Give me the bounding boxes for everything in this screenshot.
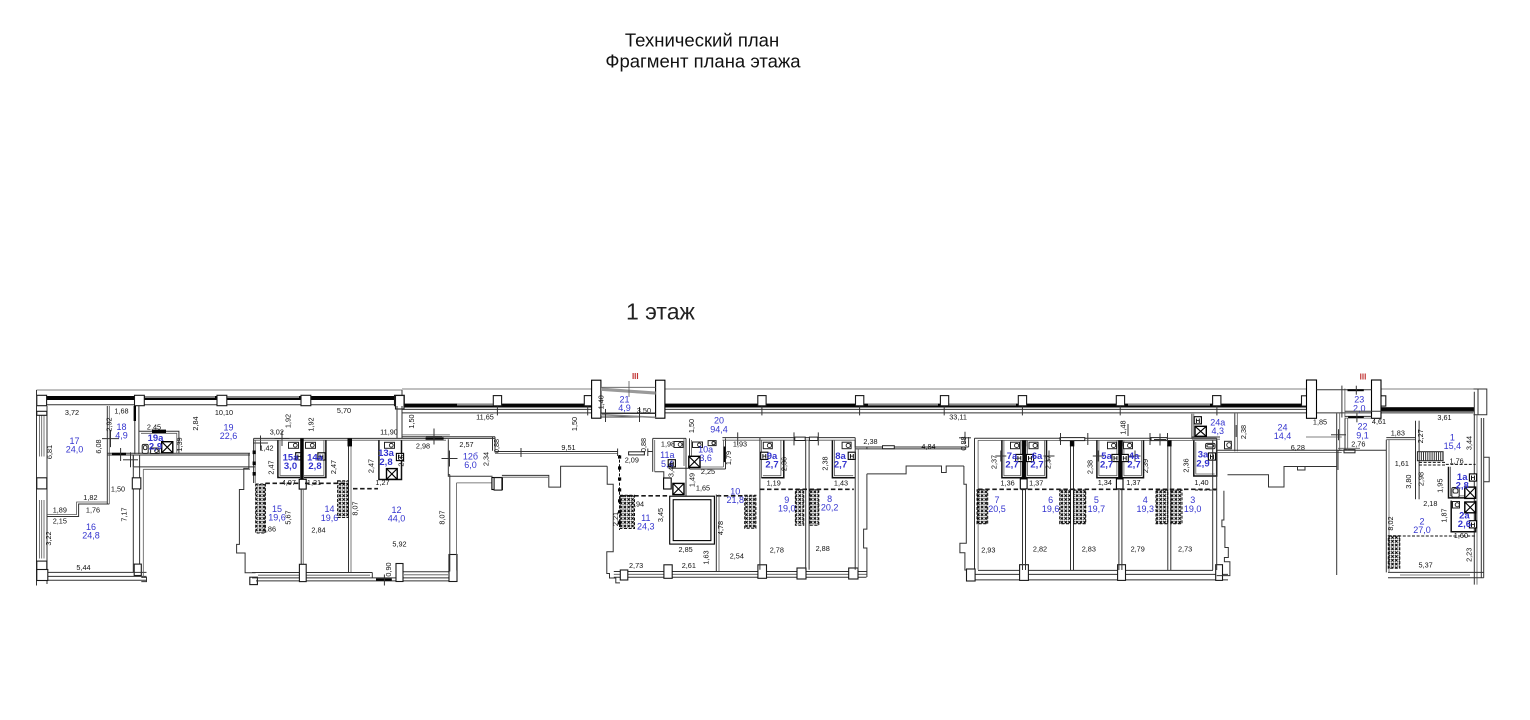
svg-text:2,38: 2,38 (1239, 425, 1248, 439)
svg-text:24,8: 24,8 (82, 531, 100, 541)
svg-text:2,61: 2,61 (682, 561, 696, 570)
svg-text:1,65: 1,65 (696, 483, 710, 492)
svg-text:2,93: 2,93 (981, 546, 995, 555)
svg-text:8,02: 8,02 (1386, 516, 1395, 530)
svg-text:1,43: 1,43 (834, 478, 848, 487)
svg-text:1,36: 1,36 (1000, 478, 1014, 487)
svg-text:4,9: 4,9 (115, 431, 128, 441)
svg-text:1,76: 1,76 (86, 506, 100, 515)
svg-text:1,83: 1,83 (1391, 429, 1405, 438)
svg-text:19,0: 19,0 (778, 503, 796, 513)
svg-text:3,80: 3,80 (1404, 474, 1413, 488)
svg-text:0,88: 0,88 (959, 436, 968, 450)
svg-text:2,15: 2,15 (53, 517, 67, 526)
svg-text:2,79: 2,79 (1131, 545, 1145, 554)
svg-text:2,8: 2,8 (308, 461, 321, 472)
svg-text:1 этаж: 1 этаж (626, 299, 695, 325)
svg-text:1,39: 1,39 (175, 437, 184, 451)
svg-text:1,85: 1,85 (1313, 417, 1327, 426)
svg-text:2,83: 2,83 (1082, 545, 1096, 554)
svg-text:2,8: 2,8 (1456, 480, 1469, 491)
svg-text:19,6: 19,6 (1042, 504, 1060, 514)
svg-text:1,92: 1,92 (284, 414, 293, 428)
svg-text:2,18: 2,18 (1423, 499, 1437, 508)
svg-text:3,02: 3,02 (270, 428, 284, 437)
svg-text:2,7: 2,7 (1030, 460, 1043, 471)
svg-text:H: H (849, 453, 854, 460)
svg-text:H: H (1471, 475, 1476, 482)
svg-text:44,0: 44,0 (388, 514, 406, 524)
svg-text:2,36: 2,36 (780, 457, 789, 471)
svg-text:2,7: 2,7 (1127, 460, 1140, 471)
svg-text:1,87: 1,87 (1439, 508, 1448, 522)
svg-text:H: H (1195, 418, 1200, 425)
svg-text:1,93: 1,93 (733, 440, 747, 449)
svg-text:III: III (632, 372, 639, 381)
svg-text:4,9: 4,9 (618, 403, 631, 413)
svg-text:H: H (1210, 454, 1215, 461)
svg-text:4,78: 4,78 (716, 521, 725, 535)
svg-text:1,50: 1,50 (570, 417, 579, 431)
svg-text:8,07: 8,07 (438, 510, 447, 524)
svg-text:4,3: 4,3 (1212, 426, 1225, 436)
svg-text:2,38: 2,38 (821, 456, 830, 470)
svg-text:2,76: 2,76 (1351, 439, 1365, 448)
svg-text:2,82: 2,82 (1033, 545, 1047, 554)
svg-text:1,37: 1,37 (1126, 478, 1140, 487)
svg-text:3,50: 3,50 (637, 406, 651, 415)
svg-text:1,68: 1,68 (114, 407, 128, 416)
svg-text:2,73: 2,73 (629, 561, 643, 570)
svg-text:3,0: 3,0 (284, 461, 297, 472)
svg-text:2,9: 2,9 (1196, 458, 1209, 469)
svg-text:0,88: 0,88 (492, 439, 501, 453)
svg-text:1,19: 1,19 (767, 478, 781, 487)
svg-text:2,32: 2,32 (396, 452, 405, 466)
svg-text:2,6: 2,6 (1458, 519, 1471, 530)
svg-text:2,47: 2,47 (266, 460, 275, 474)
svg-text:1,92: 1,92 (307, 417, 316, 431)
svg-text:2,73: 2,73 (1178, 545, 1192, 554)
svg-text:8,07: 8,07 (351, 501, 360, 515)
svg-text:1,76: 1,76 (1449, 457, 1463, 466)
svg-text:1,40: 1,40 (1194, 478, 1208, 487)
svg-text:1,98: 1,98 (661, 440, 675, 449)
svg-text:2,88: 2,88 (816, 544, 830, 553)
svg-text:19,7: 19,7 (1088, 504, 1106, 514)
svg-text:III: III (1360, 373, 1367, 382)
svg-text:1,40: 1,40 (596, 395, 605, 409)
svg-text:5,44: 5,44 (76, 563, 90, 572)
svg-text:2,84: 2,84 (311, 526, 325, 535)
svg-text:2,39: 2,39 (1141, 459, 1150, 473)
svg-text:2,45: 2,45 (147, 423, 161, 432)
svg-text:19,3: 19,3 (1137, 504, 1155, 514)
svg-text:2,7: 2,7 (765, 460, 778, 471)
svg-text:Технический план: Технический план (625, 30, 779, 51)
svg-text:2,94: 2,94 (630, 499, 644, 508)
svg-text:2,7: 2,7 (1100, 460, 1113, 471)
svg-text:2,37: 2,37 (990, 455, 999, 469)
svg-text:1,79: 1,79 (724, 451, 733, 465)
svg-text:24,3: 24,3 (637, 522, 655, 532)
svg-text:2,85: 2,85 (678, 545, 692, 554)
svg-text:1,50: 1,50 (687, 419, 696, 433)
svg-text:5,67: 5,67 (284, 510, 293, 524)
svg-text:3,61: 3,61 (1437, 413, 1451, 422)
svg-text:6,0: 6,0 (464, 460, 477, 470)
svg-text:21,8: 21,8 (727, 495, 745, 505)
svg-text:2,57: 2,57 (459, 440, 473, 449)
svg-text:5,70: 5,70 (337, 406, 351, 415)
svg-text:4,84: 4,84 (921, 442, 935, 451)
svg-text:94,4: 94,4 (710, 424, 728, 434)
svg-text:2,7: 2,7 (834, 460, 847, 471)
svg-text:11,90: 11,90 (380, 428, 398, 437)
svg-text:5,37: 5,37 (1418, 561, 1432, 570)
svg-text:3,44: 3,44 (1465, 436, 1474, 450)
svg-text:3,72: 3,72 (65, 408, 79, 417)
svg-text:20,2: 20,2 (821, 503, 839, 513)
svg-text:11,65: 11,65 (476, 413, 494, 422)
svg-text:2,9: 2,9 (149, 442, 162, 453)
svg-text:4,61: 4,61 (1372, 417, 1386, 426)
svg-text:1,61: 1,61 (1395, 459, 1409, 468)
svg-text:2,25: 2,25 (701, 467, 715, 476)
svg-text:1,95: 1,95 (1436, 479, 1445, 493)
svg-text:2,86: 2,86 (262, 525, 276, 534)
svg-text:10,10: 10,10 (215, 408, 233, 417)
svg-text:22,6: 22,6 (220, 431, 238, 441)
svg-text:1,63: 1,63 (702, 550, 711, 564)
svg-text:0,90: 0,90 (384, 562, 393, 576)
svg-text:1,50: 1,50 (407, 414, 416, 428)
svg-text:2,47: 2,47 (367, 459, 376, 473)
svg-text:33,11: 33,11 (949, 413, 967, 422)
svg-text:2,98: 2,98 (1417, 472, 1426, 486)
svg-text:2,27: 2,27 (1416, 429, 1425, 443)
svg-text:1,42: 1,42 (259, 444, 273, 453)
svg-text:2,21: 2,21 (611, 512, 620, 526)
svg-text:2,47: 2,47 (329, 460, 338, 474)
svg-text:6,28: 6,28 (1291, 443, 1305, 452)
svg-text:24,0: 24,0 (66, 445, 84, 455)
svg-text:1,48: 1,48 (1119, 420, 1128, 434)
svg-text:9,51: 9,51 (561, 443, 575, 452)
svg-text:1,27: 1,27 (375, 478, 389, 487)
svg-text:1,82: 1,82 (83, 493, 97, 502)
svg-text:2,37: 2,37 (1044, 455, 1053, 469)
svg-text:2,38: 2,38 (863, 437, 877, 446)
svg-text:Фрагмент плана этажа: Фрагмент плана этажа (605, 51, 801, 72)
svg-text:2,84: 2,84 (191, 416, 200, 430)
svg-text:1,21: 1,21 (307, 478, 321, 487)
svg-text:3,22: 3,22 (44, 531, 53, 545)
svg-text:6,81: 6,81 (45, 445, 54, 459)
svg-text:3,49: 3,49 (666, 463, 675, 477)
svg-text:20,5: 20,5 (988, 504, 1006, 514)
svg-text:2,98: 2,98 (416, 442, 430, 451)
svg-text:2,36: 2,36 (1181, 458, 1190, 472)
svg-text:1,60: 1,60 (1454, 531, 1468, 540)
svg-text:15,4: 15,4 (1444, 441, 1462, 451)
svg-text:27,0: 27,0 (1413, 525, 1431, 535)
svg-text:4,07: 4,07 (282, 478, 296, 487)
svg-text:2,54: 2,54 (730, 552, 744, 561)
svg-text:2,7: 2,7 (1005, 460, 1018, 471)
svg-text:1,89: 1,89 (53, 506, 67, 515)
svg-text:7,17: 7,17 (120, 507, 129, 521)
svg-text:5,92: 5,92 (392, 540, 406, 549)
svg-text:1,37: 1,37 (1029, 478, 1043, 487)
svg-text:2,78: 2,78 (770, 546, 784, 555)
svg-text:3,6: 3,6 (699, 453, 712, 463)
svg-text:19,0: 19,0 (1184, 504, 1202, 514)
svg-text:2,92: 2,92 (105, 417, 114, 431)
svg-text:H: H (1113, 456, 1118, 463)
svg-text:2,8: 2,8 (379, 457, 392, 468)
svg-text:1,49: 1,49 (688, 473, 697, 487)
svg-text:H: H (1471, 522, 1476, 529)
svg-text:0,88: 0,88 (639, 438, 648, 452)
svg-text:1,34: 1,34 (1098, 478, 1112, 487)
svg-text:6,08: 6,08 (94, 439, 103, 453)
svg-text:2,34: 2,34 (481, 452, 490, 466)
svg-text:14,4: 14,4 (1274, 431, 1292, 441)
svg-text:2,09: 2,09 (625, 456, 639, 465)
svg-text:2,23: 2,23 (1465, 548, 1474, 562)
svg-text:2,38: 2,38 (1086, 460, 1095, 474)
svg-text:19,6: 19,6 (321, 513, 339, 523)
svg-text:3,45: 3,45 (656, 508, 665, 522)
svg-text:1,50: 1,50 (111, 485, 125, 494)
